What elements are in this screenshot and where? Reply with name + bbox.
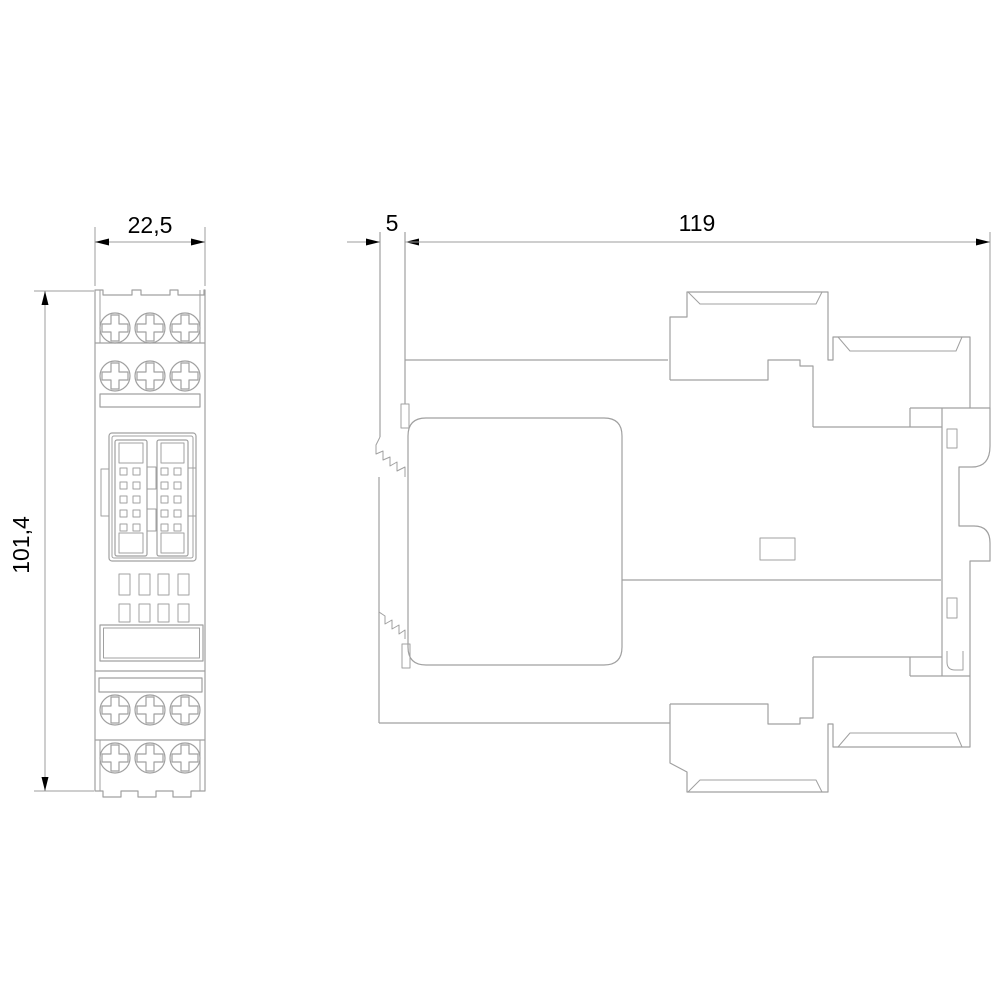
dimension-side-depth: 119 — [405, 210, 990, 408]
front-label-strip-top — [100, 394, 200, 407]
rail-clip-slot-upper — [401, 404, 409, 428]
arrow-right-icon — [976, 239, 990, 246]
front-view — [95, 290, 205, 797]
side-gap-label: 5 — [386, 210, 399, 236]
body-vent — [760, 538, 795, 560]
arrow-right-icon — [366, 239, 380, 246]
marking-label-window — [100, 625, 203, 661]
arrow-up-icon — [42, 291, 49, 305]
arrow-left-icon — [95, 239, 109, 246]
arrow-right-icon — [191, 239, 205, 246]
screw-terminals-top — [100, 313, 200, 391]
side-flange — [380, 232, 668, 437]
drawing-canvas: 22,5 101,4 5 119 — [0, 0, 1000, 1000]
side-view — [376, 232, 990, 792]
din-clip-lower — [379, 612, 405, 639]
front-width-label: 22,5 — [128, 212, 173, 238]
dimension-front-height: 101,4 — [8, 291, 94, 791]
front-label-strip-bottom — [99, 678, 202, 692]
screw-terminals-bottom — [100, 695, 200, 773]
indicator-windows — [119, 574, 189, 622]
connector-pins — [120, 468, 181, 531]
dimension-side-gap: 5 — [347, 210, 419, 246]
connector-block — [101, 433, 196, 561]
side-left-edge — [379, 477, 670, 723]
dimension-drawing: 22,5 101,4 5 119 — [0, 0, 1000, 1000]
rail-clip-slot-lower — [402, 644, 410, 668]
arrow-down-icon — [42, 777, 49, 791]
din-rail-bracket — [813, 408, 970, 676]
side-depth-label: 119 — [679, 210, 716, 236]
relay-body — [408, 418, 622, 665]
front-height-label: 101,4 — [8, 516, 34, 574]
lower-terminal-housing — [670, 657, 970, 792]
dimensions: 22,5 101,4 5 119 — [8, 210, 990, 791]
din-clip-upper — [376, 437, 405, 477]
dimension-front-width: 22,5 — [95, 212, 205, 286]
